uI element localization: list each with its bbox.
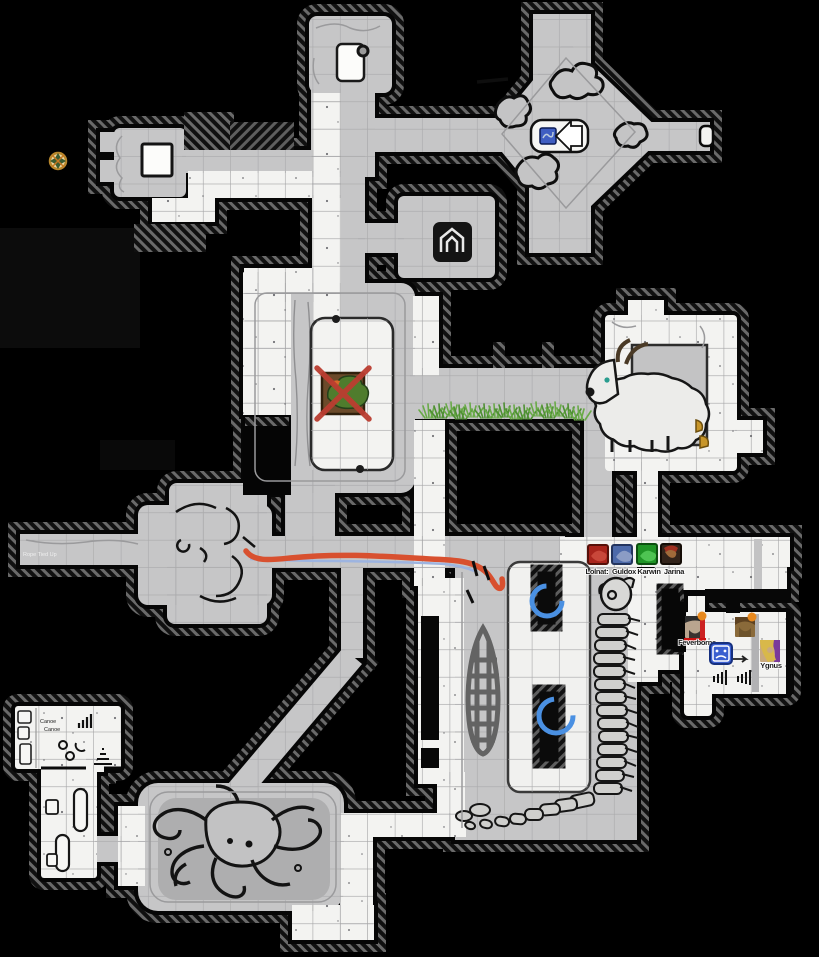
svg-text:Karwin: Karwin bbox=[637, 567, 661, 576]
svg-text:Canoe: Canoe bbox=[40, 719, 56, 725]
svg-text:Rope Tied Up: Rope Tied Up bbox=[23, 552, 57, 558]
svg-text:Jarina: Jarina bbox=[664, 567, 685, 576]
svg-text:Guldox: Guldox bbox=[612, 567, 637, 576]
svg-text:Ygnus: Ygnus bbox=[760, 661, 782, 670]
svg-text:Canoe: Canoe bbox=[44, 727, 60, 733]
svg-text:Lolnat:: Lolnat: bbox=[586, 567, 609, 576]
